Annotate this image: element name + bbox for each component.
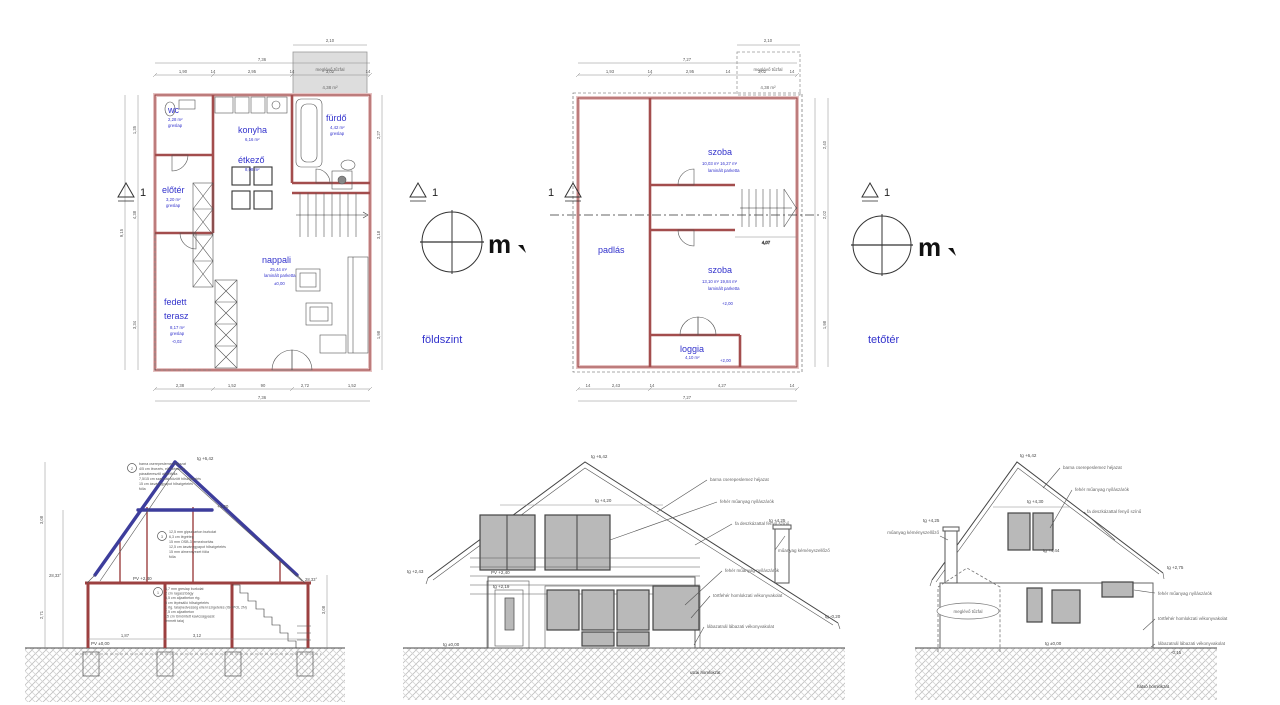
ground-hatch	[915, 648, 1217, 700]
svg-text:28,33°: 28,33°	[305, 577, 317, 582]
architectural-drawing-sheet: meglévő tűzfal 4,38 m² 2,10	[0, 0, 1280, 705]
svg-text:7,27: 7,27	[683, 395, 692, 400]
svg-text:14: 14	[290, 69, 295, 74]
svg-text:tg ±0,00: tg ±0,00	[1045, 641, 1062, 646]
room-etkezo-area: 8,08 m²	[245, 167, 260, 172]
svg-text:tg +2,19: tg +2,19	[493, 584, 510, 589]
living-room-furniture	[296, 257, 368, 353]
svg-text:fehér műanyag nyílászárók: fehér műanyag nyílászárók	[725, 568, 780, 573]
svg-text:12,5 cm ásványgyapot hőszigete: 12,5 cm ásványgyapot hőszigetelés	[169, 545, 226, 549]
svg-text:4,27: 4,27	[718, 383, 727, 388]
svg-text:2,72: 2,72	[301, 383, 310, 388]
svg-text:2,43: 2,43	[612, 383, 621, 388]
svg-text:15 cm tömörített kavicságyazat: 15 cm tömörített kavicságyazat	[165, 615, 215, 619]
room-szoba2-floor: laminált parketta	[708, 286, 740, 291]
room-szoba2-level: +2,00	[722, 301, 733, 306]
svg-text:2,27: 2,27	[376, 130, 381, 139]
north-symbol: m	[851, 214, 956, 276]
svg-text:fehér műanyag nyílászárók: fehér műanyag nyílászárók	[1158, 591, 1213, 596]
firewall-oval-label: meglévő tűzfal	[953, 609, 982, 614]
dimension-lines: 1,90 14 2,95 14 3,02 14 7,36 2,38 1,52 9…	[119, 57, 382, 401]
svg-text:15 cm ásványgyapot hőszigetelé: 15 cm ásványgyapot hőszigetelés	[139, 482, 193, 486]
ground-floor-plan: meglévő tűzfal 4,38 m² 2,10	[80, 5, 520, 415]
room-eloter-area: 3,20 m²	[166, 197, 181, 202]
svg-text:2,71: 2,71	[39, 610, 44, 619]
svg-text:1: 1	[432, 187, 438, 199]
svg-text:28,33°: 28,33°	[49, 573, 61, 578]
svg-text:barna cserepeslemez héjazat: barna cserepeslemez héjazat	[1063, 465, 1123, 470]
svg-text:7,5/15 cm szarufák között hősz: 7,5/15 cm szarufák között hőszigetelés	[139, 477, 201, 481]
side-elevation: meglévő tűzfal barna cserepeslemez héjaz…	[915, 440, 1280, 705]
svg-text:2: 2	[131, 467, 133, 471]
svg-text:barna cserepeslemez héjazat: barna cserepeslemez héjazat	[710, 477, 770, 482]
svg-text:1,35: 1,35	[132, 125, 137, 134]
plan-caption-attic: tetőtér	[868, 334, 900, 346]
svg-text:tg +4,20: tg +4,20	[595, 498, 612, 503]
svg-text:3,34: 3,34	[132, 320, 137, 329]
svg-text:1,93: 1,93	[606, 69, 615, 74]
svg-text:barna cserepeslemez héjazat: barna cserepeslemez héjazat	[139, 462, 186, 466]
svg-text:1,52: 1,52	[348, 383, 357, 388]
room-szoba1-floor: laminált parketta	[708, 168, 740, 173]
svg-text:5 cm lépésálló hőszigetelés: 5 cm lépésálló hőszigetelés	[165, 601, 209, 605]
door-swings	[678, 169, 716, 335]
elevation-caption: utcai homlokzat	[690, 670, 721, 675]
svg-text:1: 1	[548, 187, 554, 199]
section-marker-right: 1	[410, 183, 438, 201]
svg-text:tg +4,44: tg +4,44	[1043, 548, 1060, 553]
svg-text:7,5 cm aljzatbeton: 7,5 cm aljzatbeton	[165, 610, 194, 614]
svg-text:tg ±0,00: tg ±0,00	[443, 642, 460, 647]
room-eloter-floor: greslap	[166, 203, 181, 208]
north-symbol: m	[420, 210, 526, 274]
section-marker-left: 1	[118, 183, 146, 201]
firewall-area: 4,38 m²	[322, 85, 338, 90]
svg-text:4,07: 4,07	[762, 240, 771, 245]
room-padlas: padlás	[598, 245, 625, 255]
svg-text:14: 14	[790, 69, 795, 74]
room-etkezo: étkező	[238, 155, 265, 165]
plan-caption-ground: földszint	[422, 334, 462, 346]
room-nappali-area: 25,44 m²	[270, 267, 288, 272]
svg-text:tg +6,42: tg +6,42	[1020, 453, 1037, 458]
svg-text:PV +2,40: PV +2,40	[133, 576, 152, 581]
room-terasz-1: fedett	[164, 297, 187, 307]
svg-text:90: 90	[261, 383, 266, 388]
svg-text:14: 14	[790, 383, 795, 388]
svg-text:1: 1	[157, 591, 159, 595]
svg-text:1,98: 1,98	[822, 320, 827, 329]
north-glyph: m	[918, 232, 941, 262]
room-nappali: nappali	[262, 255, 291, 265]
svg-text:2 cm ragasztóágy: 2 cm ragasztóágy	[165, 592, 194, 596]
svg-text:9,15: 9,15	[119, 228, 124, 237]
room-nappali-floor: laminált parketta	[264, 273, 296, 278]
north-glyph: m	[488, 229, 511, 259]
elevation-caption: hátsó homlokzat	[1137, 684, 1170, 689]
kitchen-counter	[215, 97, 287, 113]
svg-text:PV ±0,00: PV ±0,00	[91, 641, 110, 646]
front-elevation: barna cserepeslemez héjazat fehér műanya…	[395, 440, 855, 705]
svg-text:1: 1	[884, 187, 890, 199]
svg-text:+4,20: +4,20	[217, 504, 229, 509]
svg-text:7,36: 7,36	[258, 57, 267, 62]
svg-text:3,12: 3,12	[193, 633, 202, 638]
firewall-dim: 2,10	[326, 38, 335, 43]
svg-text:fehér műanyag nyílászárók: fehér műanyag nyílászárók	[1075, 487, 1130, 492]
room-loggia-area: 4,10 m²	[685, 355, 700, 360]
room-loggia-level: +2,00	[720, 358, 731, 363]
svg-text:műanyag kéményszellőző: műanyag kéményszellőző	[778, 548, 830, 553]
svg-text:tg +6,42: tg +6,42	[197, 456, 214, 461]
section-marker-right: 1	[862, 183, 890, 201]
room-nappali-level: ±0,00	[274, 281, 285, 286]
svg-text:8,7 mm greslap burkolat: 8,7 mm greslap burkolat	[165, 587, 204, 591]
attic-windows	[480, 515, 610, 570]
svg-text:tg +2,43: tg +2,43	[407, 569, 424, 574]
svg-text:3,18: 3,18	[376, 230, 381, 239]
existing-firewall-block: meglévő tűzfal 4,38 m² 2,10	[293, 38, 367, 95]
room-konyha-area: 6,16 m²	[245, 137, 260, 142]
room-terasz-area: 8,17 m²	[170, 325, 185, 330]
svg-text:14: 14	[726, 69, 731, 74]
interior-walls	[650, 98, 740, 367]
svg-text:fa deszkázattal fenyő színű: fa deszkázattal fenyő színű	[1087, 509, 1142, 514]
svg-text:2,38: 2,38	[176, 383, 185, 388]
svg-text:14: 14	[586, 383, 591, 388]
svg-text:fólia: fólia	[169, 555, 176, 559]
room-terasz-level: -0,02	[172, 339, 182, 344]
existing-firewall-block: meglévő tűzfal 4,38 m² 2,10	[737, 38, 800, 95]
svg-text:tg -0,20: tg -0,20	[825, 614, 841, 619]
svg-text:1: 1	[140, 187, 146, 199]
svg-text:7,27: 7,27	[683, 57, 692, 62]
svg-text:1,87: 1,87	[121, 633, 130, 638]
svg-text:páraáteresztő alátétfólia: páraáteresztő alátétfólia	[139, 472, 177, 476]
roof-outline-dashed	[573, 93, 802, 372]
svg-text:14: 14	[650, 383, 655, 388]
room-szoba1-area: 10,03 m² 16,27 m²	[702, 161, 738, 166]
svg-text:3,08: 3,08	[39, 515, 44, 524]
svg-text:2,02: 2,02	[822, 210, 827, 219]
svg-text:törtfehér homlokzati vékonyvak: törtfehér homlokzati vékonyvakolat	[713, 593, 783, 598]
lattice-strip-2	[215, 280, 237, 368]
svg-text:3,02: 3,02	[758, 69, 767, 74]
outer-walls	[578, 98, 797, 367]
room-wc-floor: greslap	[168, 123, 183, 128]
svg-text:12,5 mm gipszkarton burkolat: 12,5 mm gipszkarton burkolat	[169, 530, 216, 534]
svg-text:6,3 cm légréteg: 6,3 cm légréteg	[169, 535, 194, 539]
svg-text:-0,15: -0,15	[1171, 650, 1182, 655]
svg-text:4,38 m²: 4,38 m²	[760, 85, 776, 90]
svg-text:tg +4,25: tg +4,25	[923, 518, 940, 523]
svg-text:14: 14	[648, 69, 653, 74]
svg-text:tg +4,25: tg +4,25	[769, 518, 786, 523]
room-eloter: előtér	[162, 185, 185, 195]
svg-text:4/5 cm lécezés, ellenlécezés: 4/5 cm lécezés, ellenlécezés	[139, 467, 185, 471]
svg-text:3,08: 3,08	[321, 605, 326, 614]
svg-text:műanyag kéményszellőző: műanyag kéményszellőző	[887, 530, 939, 535]
dining-table	[232, 167, 272, 209]
walls-section	[85, 507, 311, 648]
svg-text:2,95: 2,95	[248, 69, 257, 74]
svg-text:PV +2,40: PV +2,40	[491, 570, 510, 575]
layer-note-3: 3 12,5 mm gipszkarton burkolat 6,3 cm lé…	[158, 530, 227, 559]
room-konyha: konyha	[238, 125, 267, 135]
svg-text:fólia: fólia	[139, 487, 146, 491]
room-furdo: fürdő	[326, 113, 347, 123]
stair	[296, 193, 368, 237]
room-wc-area: 2,28 m²	[168, 117, 183, 122]
svg-text:tg +6,42: tg +6,42	[591, 454, 608, 459]
room-szoba1: szoba	[708, 147, 732, 157]
chimney	[773, 525, 791, 583]
svg-text:2,40: 2,40	[822, 140, 827, 149]
svg-text:7,36: 7,36	[258, 395, 267, 400]
svg-text:tg +4,30: tg +4,30	[1027, 499, 1044, 504]
svg-text:3,02: 3,02	[326, 69, 335, 74]
door-swings	[172, 155, 330, 370]
attic-plan: meglévő tűzfal 4,38 m² 2,10 4,07 padlás …	[530, 5, 960, 415]
svg-text:1,98: 1,98	[376, 330, 381, 339]
ground-hatch	[403, 648, 845, 700]
svg-text:1,90: 1,90	[179, 69, 188, 74]
svg-text:tg +2,75: tg +2,75	[1167, 565, 1184, 570]
svg-text:2,95: 2,95	[686, 69, 695, 74]
svg-text:14: 14	[366, 69, 371, 74]
room-terasz-floor: greslap	[170, 331, 185, 336]
svg-text:15 mm álmennyezet fólia: 15 mm álmennyezet fólia	[169, 550, 209, 554]
room-furdo-area: 4,42 m²	[330, 125, 345, 130]
svg-text:lábazatnál lábazati vékonyvako: lábazatnál lábazati vékonyvakolat	[1158, 641, 1226, 646]
room-wc: wc	[167, 105, 179, 115]
svg-text:termett talaj: termett talaj	[165, 619, 184, 623]
svg-text:2,10: 2,10	[764, 38, 773, 43]
room-loggia: loggia	[680, 344, 704, 354]
room-szoba2-area: 13,10 m² 19,84 m²	[702, 279, 738, 284]
svg-text:4,38: 4,38	[132, 210, 137, 219]
svg-text:15 mm OSB-3 lemezborítás: 15 mm OSB-3 lemezborítás	[169, 540, 214, 544]
svg-text:lábazatnál lábazati vékonyvako: lábazatnál lábazati vékonyvakolat	[707, 624, 775, 629]
stair-section	[232, 585, 311, 648]
svg-text:6,5 cm aljzatbeton rtg.: 6,5 cm aljzatbeton rtg.	[165, 596, 200, 600]
room-furdo-floor: greslap	[330, 131, 345, 136]
attic-windows	[1008, 513, 1053, 550]
svg-text:14: 14	[211, 69, 216, 74]
svg-text:fehér műanyag nyílászárók: fehér műanyag nyílászárók	[720, 499, 775, 504]
room-terasz-2: terasz	[164, 311, 189, 321]
svg-text:1,52: 1,52	[228, 383, 237, 388]
svg-text:törtfehér homlokzati vékonyvak: törtfehér homlokzati vékonyvakolat	[1158, 616, 1228, 621]
room-szoba2: szoba	[708, 265, 732, 275]
svg-text:3: 3	[161, 535, 163, 539]
attic-stair: 4,07	[735, 189, 797, 245]
section-drawing: 2 barna cserepeslemez héjazat 4/5 cm léc…	[25, 440, 345, 705]
svg-text:1 rtg. talajnedvesség elleni s: 1 rtg. talajnedvesség elleni szigetelés …	[165, 605, 247, 609]
